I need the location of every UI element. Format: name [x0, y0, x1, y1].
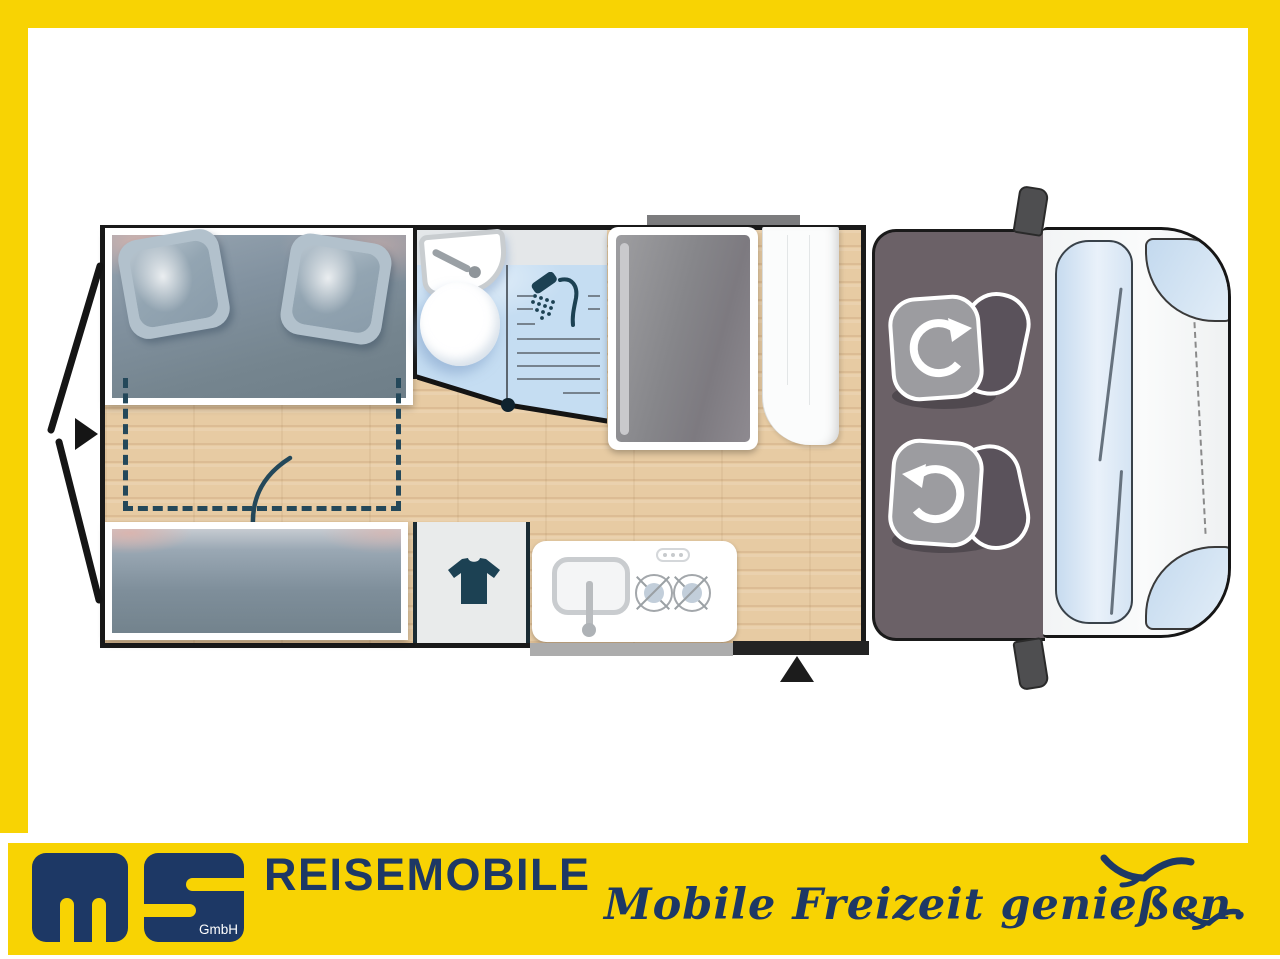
kitchen-faucet-knob [582, 623, 596, 637]
windshield-icon [1055, 240, 1133, 624]
mirror-icon [1012, 637, 1049, 691]
side-window [1145, 238, 1231, 322]
side-window [1145, 546, 1231, 630]
logo-gmbh-label: GmbH [199, 922, 238, 937]
floorplan [0, 0, 1280, 840]
shower-head-icon [530, 272, 582, 328]
entry-step [530, 643, 733, 656]
stove-knobs-icon [656, 548, 690, 562]
passenger-swivel-seat [884, 432, 1036, 556]
bathroom-partition [417, 372, 607, 432]
tshirt-icon [448, 558, 500, 604]
burner-icon [635, 574, 673, 612]
burner-icon [673, 574, 711, 612]
wiper-icon [1098, 287, 1122, 461]
tall-cabinet [762, 227, 839, 445]
bench-bed [105, 522, 408, 640]
faucet-knob [468, 266, 481, 279]
ms-logo: GmbH [32, 853, 244, 942]
fridge-handle [620, 243, 629, 435]
fridge-door [616, 235, 750, 442]
kitchen-block [532, 541, 737, 642]
bench-cushion [112, 529, 401, 633]
toilet-icon [420, 282, 500, 366]
door-pivot [501, 398, 515, 412]
door-arrow [75, 418, 98, 450]
rear-doors-arrow-icon [38, 258, 108, 608]
seagull-icon [1098, 848, 1198, 890]
hood-seam [1193, 322, 1206, 534]
vehicle-front [1043, 227, 1231, 638]
logo-s-block: GmbH [144, 853, 244, 942]
listing-image: GmbH REISEMOBILE Mobile Freizeit genieße… [0, 0, 1280, 959]
pillow [278, 231, 395, 348]
wardrobe [413, 522, 530, 643]
entry-sliding-door [733, 641, 869, 655]
wiper-icon [1110, 470, 1123, 615]
company-line: REISEMOBILE [264, 849, 591, 901]
driver-swivel-seat [884, 290, 1036, 412]
faucet [431, 248, 472, 273]
fridge-column [608, 227, 758, 450]
entry-triangle-icon [780, 656, 814, 682]
pillow [115, 226, 233, 342]
logo-m-block [32, 853, 128, 942]
kitchen-faucet [586, 581, 593, 627]
seagull-icon [1180, 902, 1242, 934]
